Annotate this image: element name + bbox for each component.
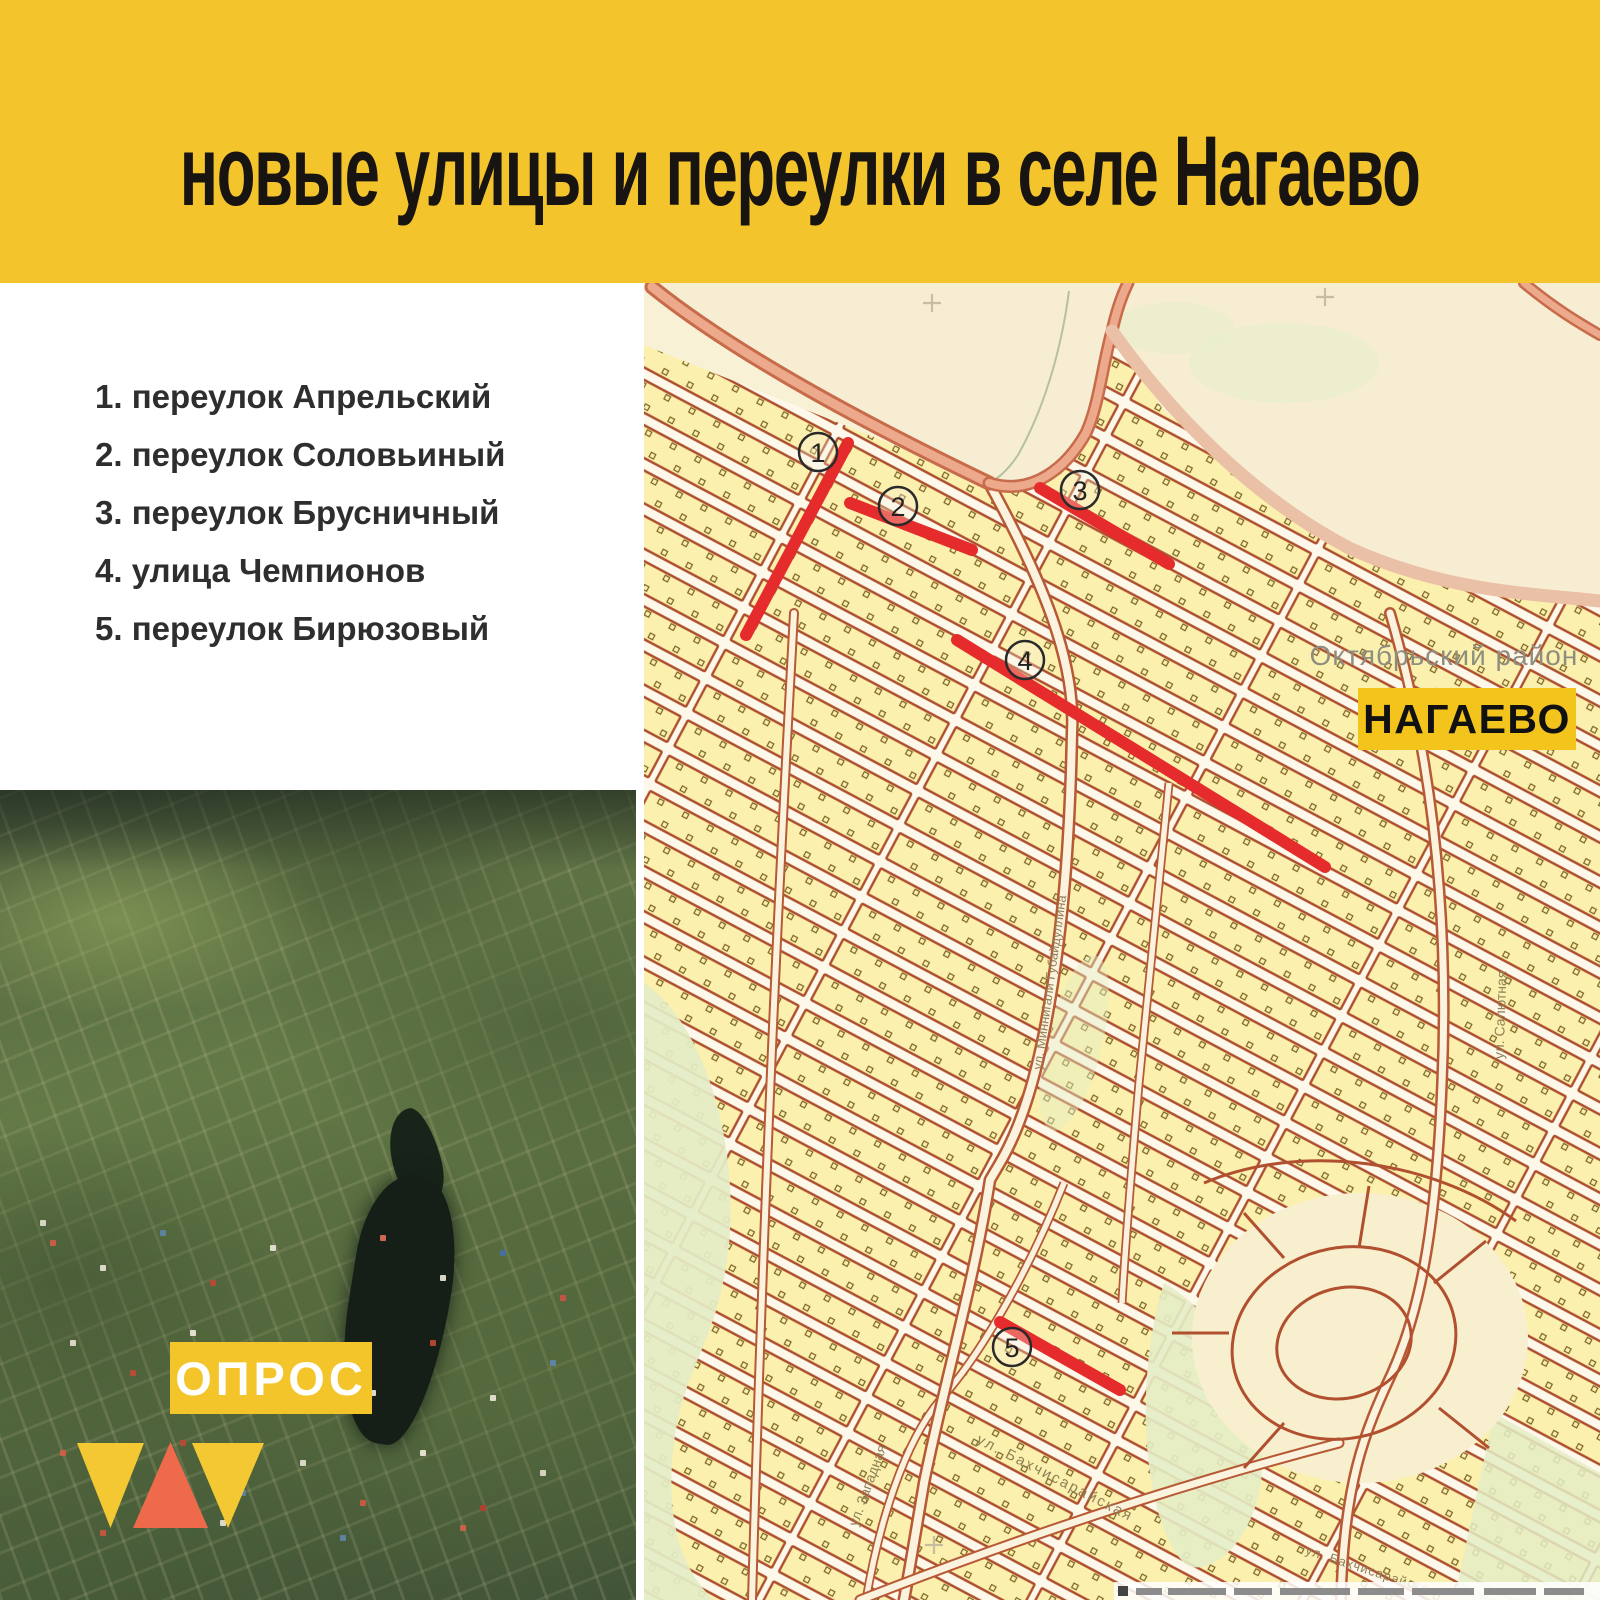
svg-text:4: 4 <box>1017 646 1032 676</box>
legend-item: 4. улица Чемпионов <box>95 554 636 587</box>
village-roofs <box>40 1220 46 1226</box>
aerial-photo: ОПРОС <box>0 790 636 1600</box>
legend-item: 2. переулок Соловьиный <box>95 438 636 471</box>
infographic: новые улицы и переулки в селе Нагаево 1.… <box>0 0 1600 1600</box>
map-svg: 1 2 3 4 5 <box>644 283 1600 1600</box>
legend-item: 3. переулок Брусничный <box>95 496 636 529</box>
legend-item: 1. переулок Апрельский <box>95 380 636 413</box>
svg-text:НАГАЕВО: НАГАЕВО <box>1363 696 1571 742</box>
opros-badge: ОПРОС <box>170 1342 372 1414</box>
header-banner: новые улицы и переулки в селе Нагаево <box>0 0 1600 283</box>
legend-panel: 1. переулок Апрельский 2. переулок Солов… <box>0 283 636 790</box>
svg-text:2: 2 <box>890 492 905 522</box>
triangle-down-icon <box>192 1443 264 1528</box>
street-marker: 2 <box>879 487 917 525</box>
svg-text:1: 1 <box>810 438 825 468</box>
opros-label: ОПРОС <box>175 1351 367 1406</box>
street-marker: 1 <box>799 433 837 471</box>
map-panel: 1 2 3 4 5 <box>644 283 1600 1600</box>
street-label-salutnaya: ул. Салютная <box>1490 970 1509 1059</box>
triangle-up-icon <box>133 1442 208 1528</box>
triangle-down-icon <box>77 1443 144 1528</box>
street-marker: 5 <box>993 1328 1031 1366</box>
svg-text:5: 5 <box>1004 1333 1019 1363</box>
region-label: Октябрьский район <box>1310 640 1579 671</box>
page-title: новые улицы и переулки в селе Нагаево <box>180 56 1420 228</box>
photo-horizon-haze <box>0 790 636 870</box>
svg-text:3: 3 <box>1072 476 1087 506</box>
legend-item: 5. переулок Бирюзовый <box>95 612 636 645</box>
street-marker: 4 <box>1006 641 1044 679</box>
street-marker: 3 <box>1061 471 1099 509</box>
village-badge: НАГАЕВО <box>1358 688 1576 750</box>
map-attribution <box>1114 1582 1600 1600</box>
